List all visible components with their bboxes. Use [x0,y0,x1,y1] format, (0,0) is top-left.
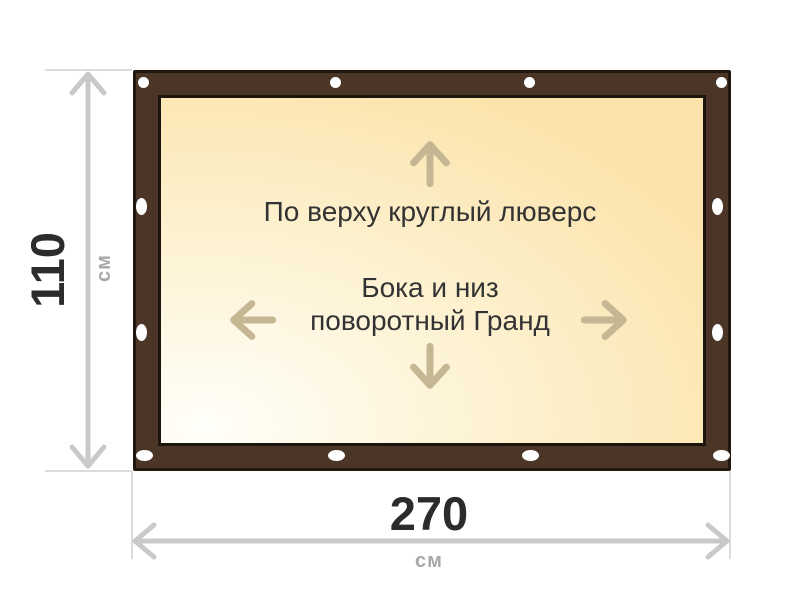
grommet-icon [136,450,153,461]
width-unit-label: см [329,550,529,573]
sides-bottom-label-line2: поворотный Гранд [150,304,710,337]
grommet-icon [328,450,345,461]
grommet-icon [136,324,147,341]
grommet-icon [716,77,727,88]
top-edge-label: По верху круглый люверс [150,196,710,228]
width-value-label: 270 [279,488,579,540]
grommet-icon [713,450,730,461]
sides-bottom-label: Бока и низ поворотный Гранд [150,271,710,337]
height-unit-label: см [93,238,115,298]
grommet-icon [136,198,147,215]
grommet-icon [522,450,539,461]
grommet-icon [330,77,341,88]
grommet-icon [712,198,723,215]
dimension-diagram: По верху круглый люверс Бока и низ повор… [0,0,800,600]
arrow-down-icon [404,342,456,394]
grommet-icon [524,77,535,88]
sides-bottom-label-line1: Бока и низ [150,271,710,304]
arrow-up-icon [404,136,456,188]
grommet-icon [138,77,149,88]
height-extension-line-bottom [45,470,132,472]
grommet-icon [712,324,723,341]
height-value-label: 110 [22,200,74,340]
